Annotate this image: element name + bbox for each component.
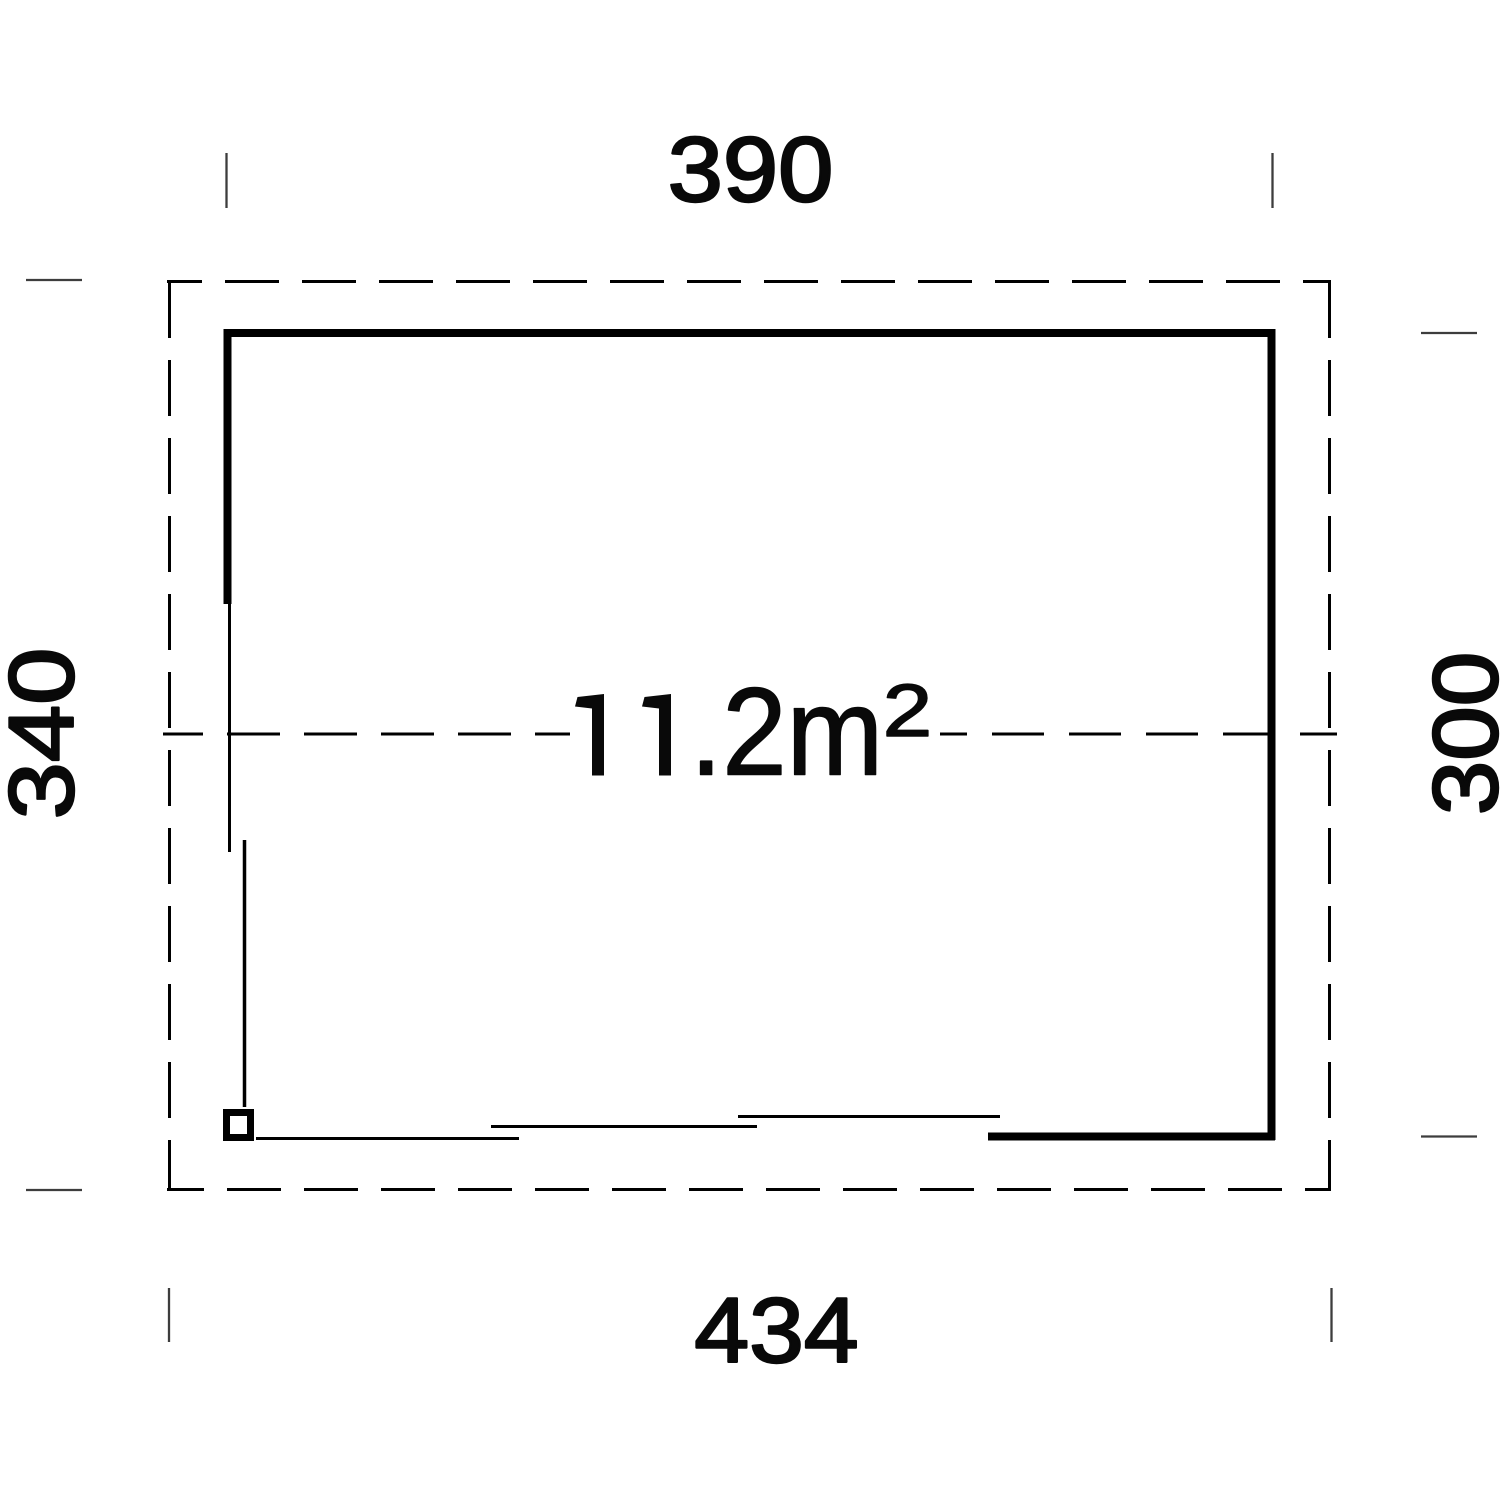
svg-text:340: 340 — [0, 648, 93, 820]
svg-text:2: 2 — [883, 670, 932, 752]
svg-text:434: 434 — [694, 1280, 858, 1382]
svg-text:390: 390 — [668, 118, 834, 221]
svg-text:.2m: .2m — [690, 663, 883, 801]
svg-text:300: 300 — [1415, 652, 1500, 816]
